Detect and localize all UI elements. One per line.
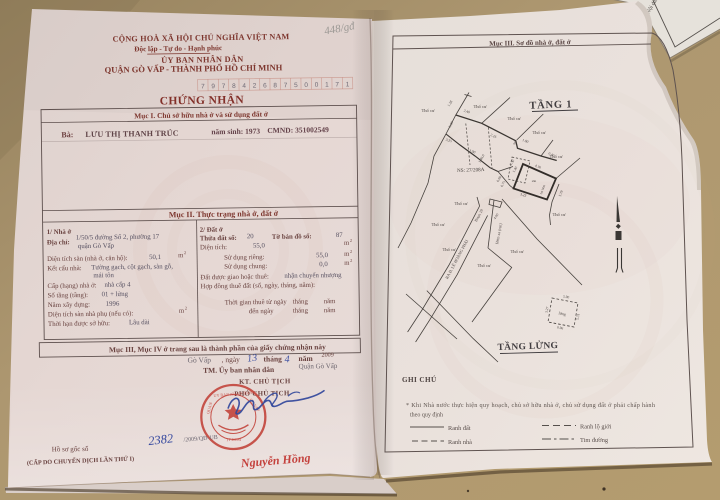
- svg-text:GHI CHÚ: GHI CHÚ: [402, 374, 437, 384]
- svg-text:7: 7: [284, 82, 288, 89]
- svg-text:tháng: tháng: [263, 354, 282, 363]
- svg-text:Thửa đất số:: Thửa đất số:: [200, 235, 237, 243]
- svg-text:2009: 2009: [321, 352, 333, 359]
- svg-text:0: 0: [315, 82, 319, 89]
- svg-text:theo quy định: theo quy định: [410, 413, 443, 419]
- svg-text:1: 1: [325, 82, 329, 89]
- svg-text:sân: sân: [532, 179, 537, 183]
- svg-text:87: 87: [336, 232, 343, 239]
- svg-text:Thổ cư: Thổ cư: [421, 108, 435, 113]
- svg-text:TP.HCM: TP.HCM: [226, 437, 241, 442]
- svg-text:năm sinh: 1973: năm sinh: 1973: [211, 127, 260, 137]
- svg-text:Ranh nhà: Ranh nhà: [448, 439, 472, 446]
- svg-text:LƯU THỊ THANH TRÚC: LƯU THỊ THANH TRÚC: [85, 128, 178, 139]
- svg-text:Sử dụng chung:: Sử dụng chung:: [224, 263, 267, 271]
- svg-text:Bà:: Bà:: [61, 130, 73, 139]
- svg-text:9: 9: [211, 83, 215, 90]
- svg-text:2: 2: [253, 83, 257, 90]
- svg-text:Mục I. Chủ sở hữu nhà ở và sử: Mục I. Chủ sở hữu nhà ở và sử dụng đất ở: [134, 109, 269, 120]
- svg-text:Ranh lộ giới: Ranh lộ giới: [580, 424, 612, 431]
- svg-text:nhận chuyển nhượng: nhận chuyển nhượng: [284, 272, 342, 280]
- svg-text:4: 4: [284, 354, 289, 365]
- svg-text:2382: 2382: [147, 431, 173, 448]
- svg-text:Đất được giao hoặc thuê:: Đất được giao hoặc thuê:: [200, 273, 269, 281]
- svg-text:Tường gạch, cột gạch, sàn gỗ,: Tường gạch, cột gạch, sàn gỗ,: [91, 263, 173, 271]
- svg-text:Thổ cư: Thổ cư: [507, 116, 521, 121]
- svg-text:quận Gò Vấp: quận Gò Vấp: [78, 243, 115, 251]
- svg-text:Lâu dài: Lâu dài: [129, 319, 150, 326]
- svg-text:1/50/5 đường Số 2, phường 17: 1/50/5 đường Số 2, phường 17: [76, 233, 160, 241]
- svg-text:Thổ cư: Thổ cư: [552, 212, 566, 217]
- svg-text:1: 1: [346, 81, 350, 88]
- svg-text:tháng: tháng: [293, 307, 309, 314]
- svg-text:Thời hạn được sở hữu:: Thời hạn được sở hữu:: [48, 320, 110, 328]
- svg-text:Thổ cư: Thổ cư: [510, 249, 524, 254]
- svg-text:5: 5: [294, 82, 298, 89]
- svg-text:Địa chỉ:: Địa chỉ:: [47, 239, 70, 246]
- svg-text:TM. Ủy ban nhân dân: TM. Ủy ban nhân dân: [203, 364, 275, 375]
- svg-text:đến ngày: đến ngày: [249, 308, 274, 315]
- svg-text:55,0: 55,0: [253, 243, 266, 250]
- svg-text:2: 2: [350, 249, 352, 254]
- svg-text:Tờ bản đồ số:: Tờ bản đồ số:: [272, 233, 312, 241]
- svg-text:mái tôn: mái tôn: [93, 272, 114, 279]
- svg-text:4: 4: [242, 83, 246, 90]
- svg-text:Thổ cư: Thổ cư: [477, 263, 491, 268]
- svg-text:tháng: tháng: [293, 298, 309, 305]
- svg-text:Diện tích sàn (nhà ở, căn hộ):: Diện tích sàn (nhà ở, căn hộ):: [47, 255, 128, 263]
- svg-text:2/ Đất ở: 2/ Đất ở: [200, 227, 223, 234]
- svg-text:CHỨNG NHẬN: CHỨNG NHẬN: [160, 92, 245, 107]
- svg-text:01 + lửng: 01 + lửng: [102, 291, 129, 298]
- svg-text:Diện tích:: Diện tích:: [200, 244, 227, 251]
- svg-text:Thời gian thuê từ ngày: Thời gian thuê từ ngày: [225, 299, 288, 307]
- svg-text:Thổ cư: Thổ cư: [431, 222, 445, 227]
- svg-text:Diện tích sàn nhà phụ (nếu có): Diện tích sàn nhà phụ (nếu có):: [48, 310, 134, 318]
- svg-text:20: 20: [247, 233, 254, 240]
- svg-text:Năm xây dựng:: Năm xây dựng:: [48, 301, 90, 309]
- svg-text:NS: 27/208A: NS: 27/208A: [457, 167, 485, 174]
- svg-text:năm: năm: [324, 298, 337, 305]
- svg-text:50,1: 50,1: [149, 254, 161, 261]
- svg-text:2: 2: [184, 250, 186, 255]
- svg-text:2: 2: [350, 238, 352, 243]
- svg-text:55,0: 55,0: [316, 252, 329, 259]
- svg-text:năm: năm: [324, 307, 337, 314]
- svg-text:Thổ cư: Thổ cư: [442, 247, 456, 252]
- svg-text:2: 2: [350, 258, 352, 263]
- svg-text:Mục III. Sơ đồ nhà ở, đất ở: Mục III. Sơ đồ nhà ở, đất ở: [489, 38, 571, 48]
- svg-text:Số tầng (tầng):: Số tầng (tầng):: [48, 292, 89, 300]
- svg-text:nhà cấp 4: nhà cấp 4: [104, 281, 131, 288]
- svg-text:, ngày: , ngày: [221, 355, 240, 364]
- svg-text:KT. CHỦ TỊCH: KT. CHỦ TỊCH: [239, 377, 291, 386]
- svg-text:Thổ cư: Thổ cư: [532, 130, 546, 135]
- svg-text:Sử dụng riêng:: Sử dụng riêng:: [224, 254, 265, 262]
- svg-text:8: 8: [273, 82, 277, 89]
- svg-text:Độc lập - Tự do - Hạnh phúc: Độc lập - Tự do - Hạnh phúc: [134, 44, 223, 53]
- svg-text:8: 8: [232, 83, 236, 90]
- svg-text:Gò Vấp: Gò Vấp: [187, 355, 211, 364]
- svg-text:7: 7: [222, 83, 226, 90]
- svg-text:Hồ sơ gốc số: Hồ sơ gốc số: [52, 445, 89, 454]
- svg-text:Cấp (hạng) nhà ở:: Cấp (hạng) nhà ở:: [47, 282, 96, 290]
- svg-text:Mục II. Thực trạng nhà ở, đất: Mục II. Thực trạng nhà ở, đất ở: [169, 209, 279, 220]
- svg-text:Thổ cư: Thổ cư: [454, 201, 468, 206]
- svg-text:CMND: 351002549: CMND: 351002549: [267, 125, 329, 135]
- svg-text:7: 7: [335, 81, 339, 88]
- svg-text:1996: 1996: [106, 301, 120, 308]
- svg-text:2: 2: [185, 306, 187, 311]
- svg-text:Ranh đất: Ranh đất: [448, 425, 471, 432]
- svg-text:6: 6: [263, 82, 267, 89]
- svg-text:1/ Nhà ở: 1/ Nhà ở: [47, 229, 72, 236]
- svg-text:0,0: 0,0: [319, 261, 328, 268]
- svg-text:Quận Gò Vấp: Quận Gò Vấp: [299, 362, 338, 371]
- svg-text:Kết cấu nhà:: Kết cấu nhà:: [47, 265, 82, 272]
- svg-text:0: 0: [304, 82, 308, 89]
- svg-text:7: 7: [201, 83, 205, 90]
- svg-text:Tim đường: Tim đường: [580, 437, 609, 444]
- svg-text:Thổ cư: Thổ cư: [473, 104, 487, 109]
- svg-text:13: 13: [247, 353, 258, 365]
- svg-text:* Khi Nhà nước thực hiện quy h: * Khi Nhà nước thực hiện quy hoạch, chủ …: [406, 402, 656, 409]
